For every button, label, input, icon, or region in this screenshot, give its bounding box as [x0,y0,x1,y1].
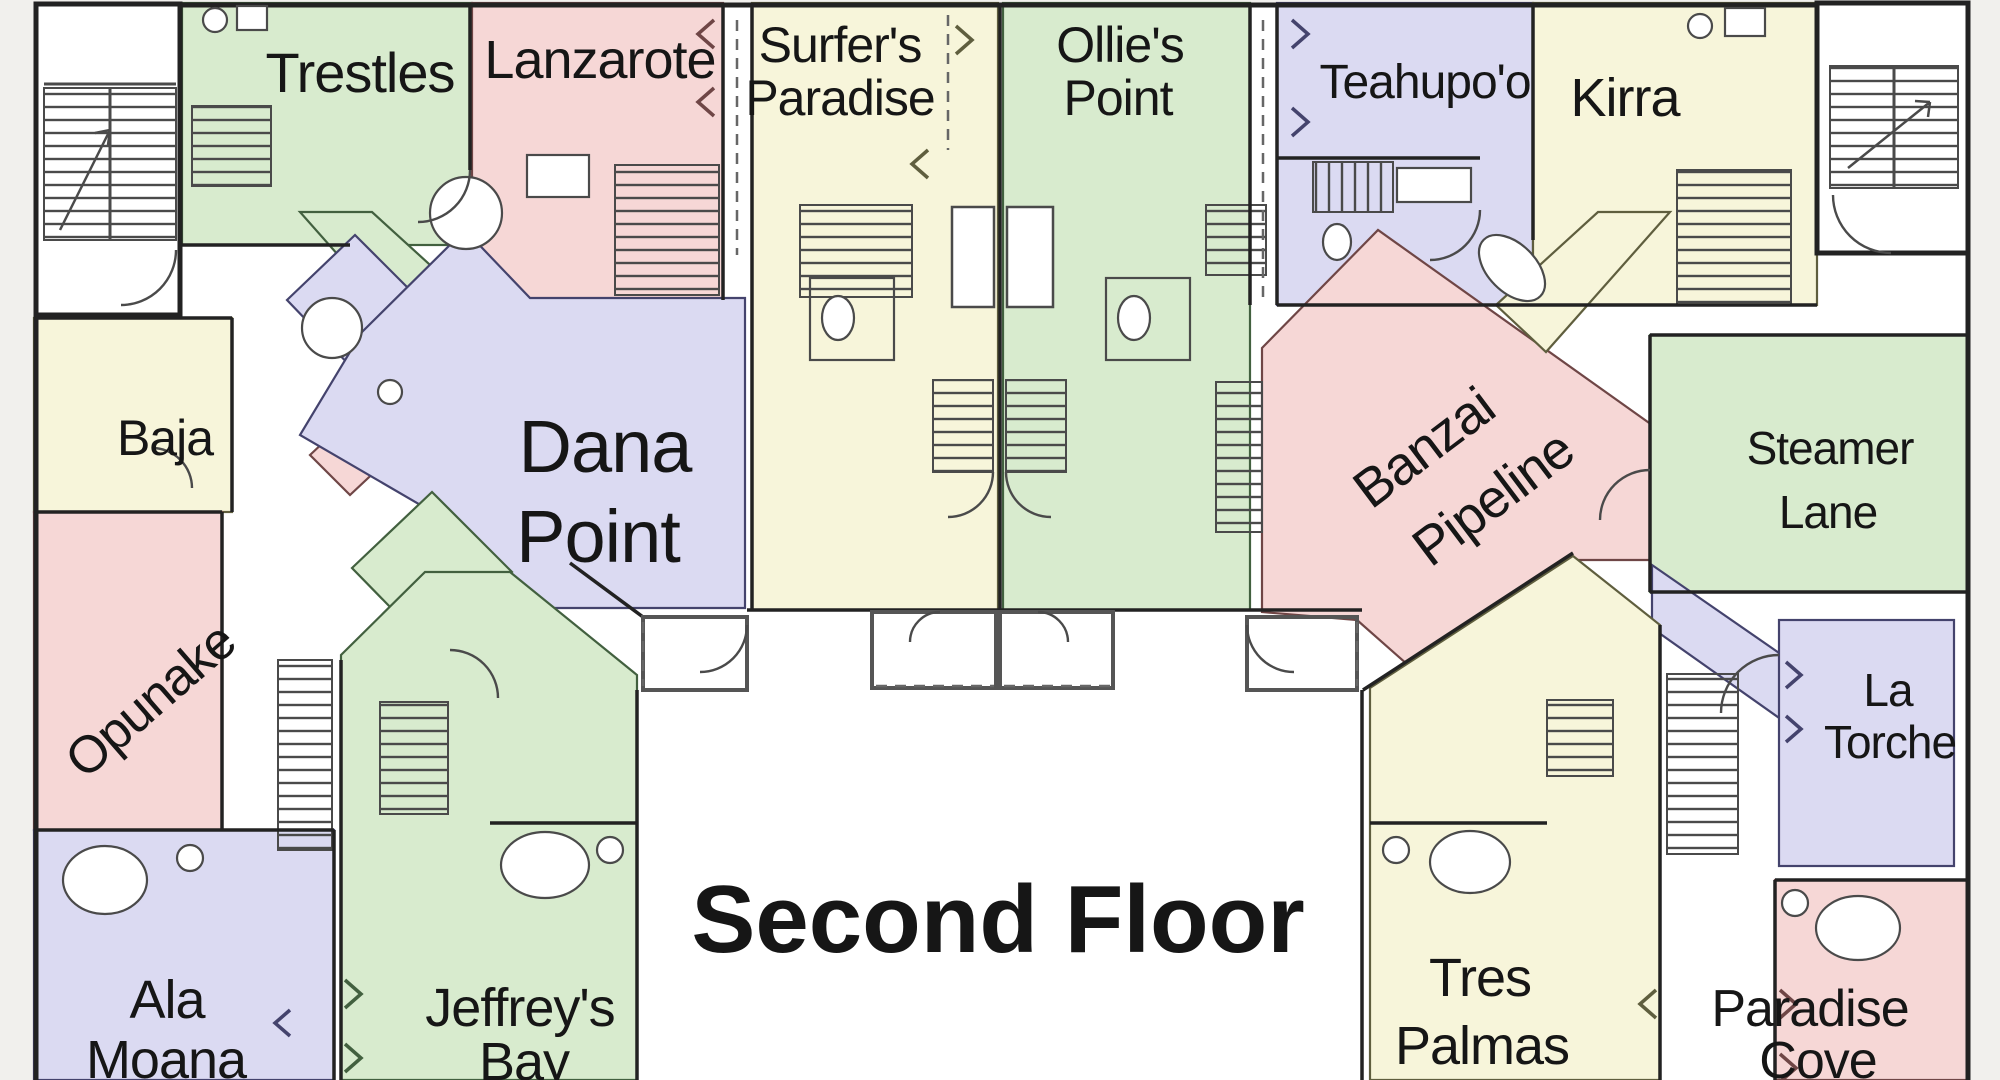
unit-ala-moana-label-2: Moana [86,1030,248,1080]
unit-la-torche-label-2: Torche [1824,716,1956,768]
unit-jeffreys-bay-label-2: Bay [479,1032,570,1080]
unit-dana-point-label-2: Point [516,495,681,578]
toilet-surfers [822,296,854,340]
unit-kirra-label: Kirra [1570,68,1681,128]
unit-surfers-paradise-label-2: Paradise [745,70,934,126]
unit-steamer-lane-label-2: Lane [1779,486,1877,538]
stairs-tres-palmas [1547,700,1613,776]
unit-teahupoo-label: Teahupo'o [1319,56,1530,109]
toilet-trestles [203,8,227,32]
tub-core-west-lower [302,298,362,358]
elevator-left [952,207,994,307]
tub-ala-moana [63,846,147,914]
toilet-ollies [1118,296,1150,340]
unit-la-torche-label-1: La [1863,664,1914,716]
toilet-kirra [1688,14,1712,38]
floor-title: Second Floor [691,866,1304,973]
stairs-kirra [1677,170,1791,305]
stairs-surfers-lower [933,380,993,472]
unit-ollies-point-label-1: Ollie's [1056,17,1184,73]
unit-ala-moana-label-1: Ala [129,970,206,1030]
stairs-surfers-upper [800,205,912,297]
stairwell-top-right [1830,66,1958,188]
unit-jeffreys-bay-label-1: Jeffrey's [425,978,614,1038]
unit-trestles-label: Trestles [265,41,454,104]
unit-steamer-lane-label-1: Steamer [1747,422,1915,474]
stairs-jeffreys [380,702,448,814]
unit-dana-point-label-1: Dana [519,405,694,488]
tub-jeffreys [501,832,589,898]
unit-ollies-point-label-2: Point [1064,70,1174,126]
unit-tres-palmas-label-1: Tres [1429,948,1531,1008]
stairs-lanzarote [615,165,719,295]
tub-tres-palmas [1430,831,1510,893]
kitchen-lanzarote [527,155,589,197]
stairs-ala-moana [278,660,332,850]
unit-surfers-paradise-label-1: Surfer's [759,17,922,73]
stairs-ollies-lower [1006,380,1066,472]
toilet-jeffreys [597,837,623,863]
unit-tres-palmas-label-2: Palmas [1395,1016,1569,1076]
unit-paradise-cove-label-1: Paradise [1711,980,1908,1038]
toilet-tres-palmas [1383,837,1409,863]
unit-paradise-cove-label-2: Cove [1759,1032,1876,1080]
unit-lanzarote-label: Lanzarote [484,30,715,90]
stairs-trestles [192,106,271,186]
stairs-banzai [1216,382,1262,532]
toilet-core-west [378,380,402,404]
unit-baja-label: Baja [117,410,214,466]
sink-kirra [1725,8,1765,36]
toilet-paradise-cove [1782,890,1808,916]
floor-plan: Trestles Lanzarote Surfer's Paradise Oll… [0,0,2000,1080]
tub-paradise-cove [1816,896,1900,960]
sink-trestles [237,6,267,30]
stairs-east-core [1667,674,1738,854]
tub-teahupoo [1397,168,1471,202]
stairwell-top-left [44,84,176,240]
elevator-right [1007,207,1053,307]
stairs-teahupoo [1313,162,1393,212]
toilet-ala-moana [177,845,203,871]
stairs-ollies-upper [1206,205,1266,275]
toilet-teahupoo [1323,224,1351,260]
